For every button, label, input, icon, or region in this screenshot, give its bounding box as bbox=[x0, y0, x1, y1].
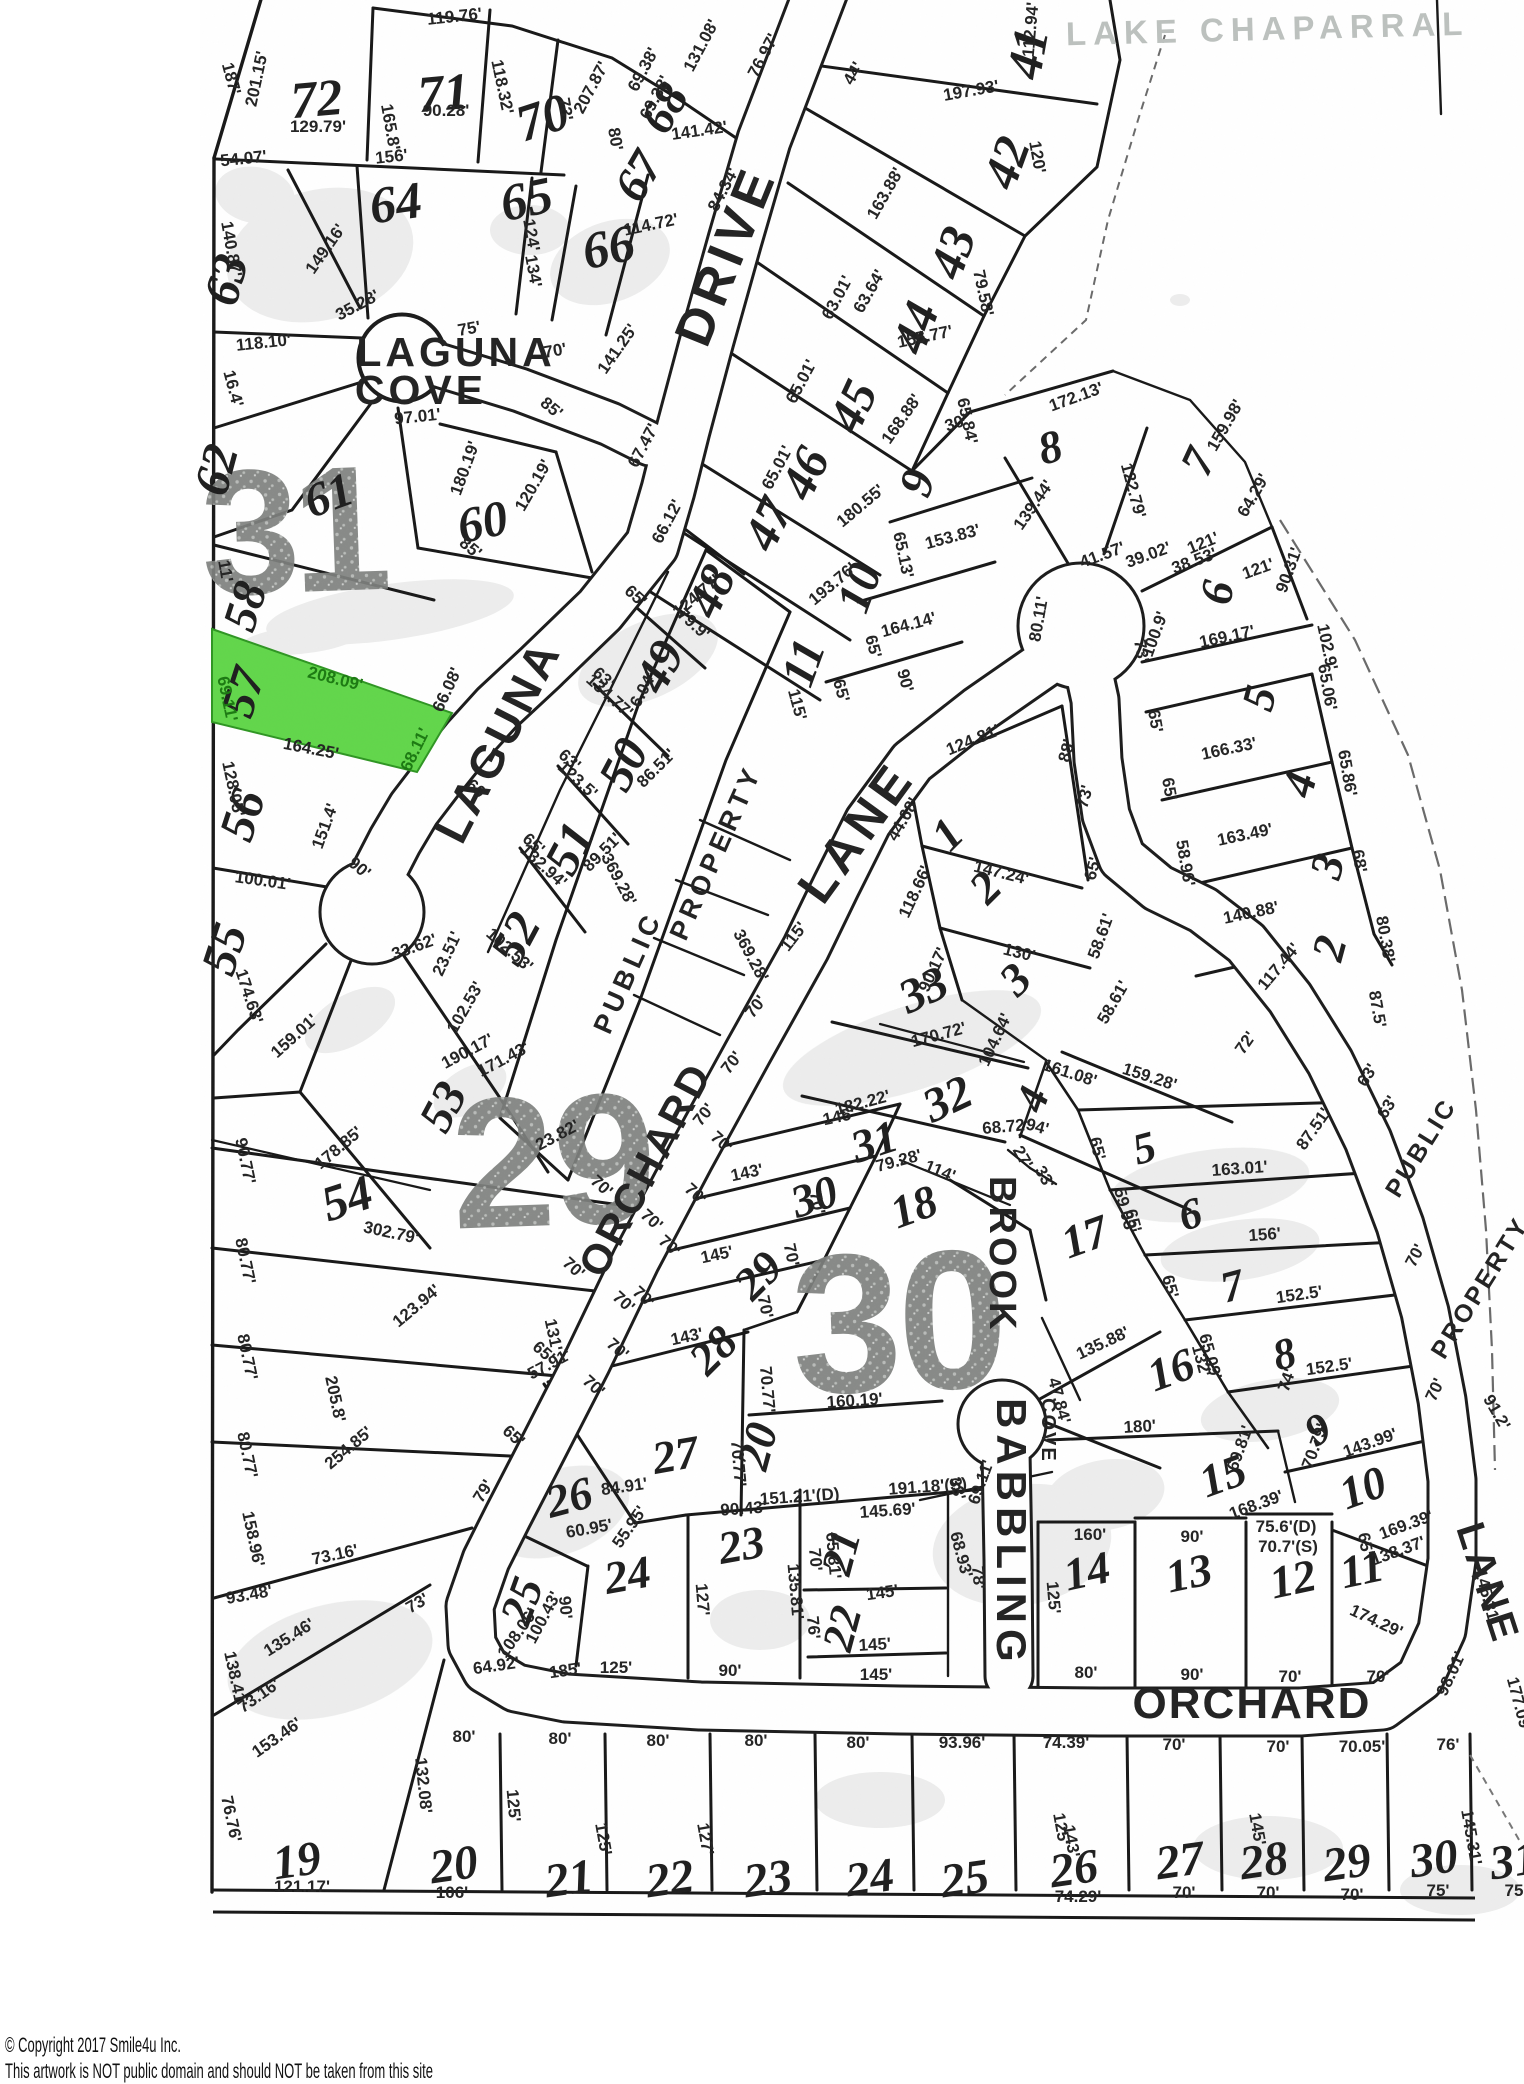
svg-text:This artwork is NOT public dom: This artwork is NOT public domain and sh… bbox=[5, 2060, 433, 2083]
svg-text:© Copyright 2017 Smile4u Inc.: © Copyright 2017 Smile4u Inc. bbox=[5, 2034, 181, 2057]
